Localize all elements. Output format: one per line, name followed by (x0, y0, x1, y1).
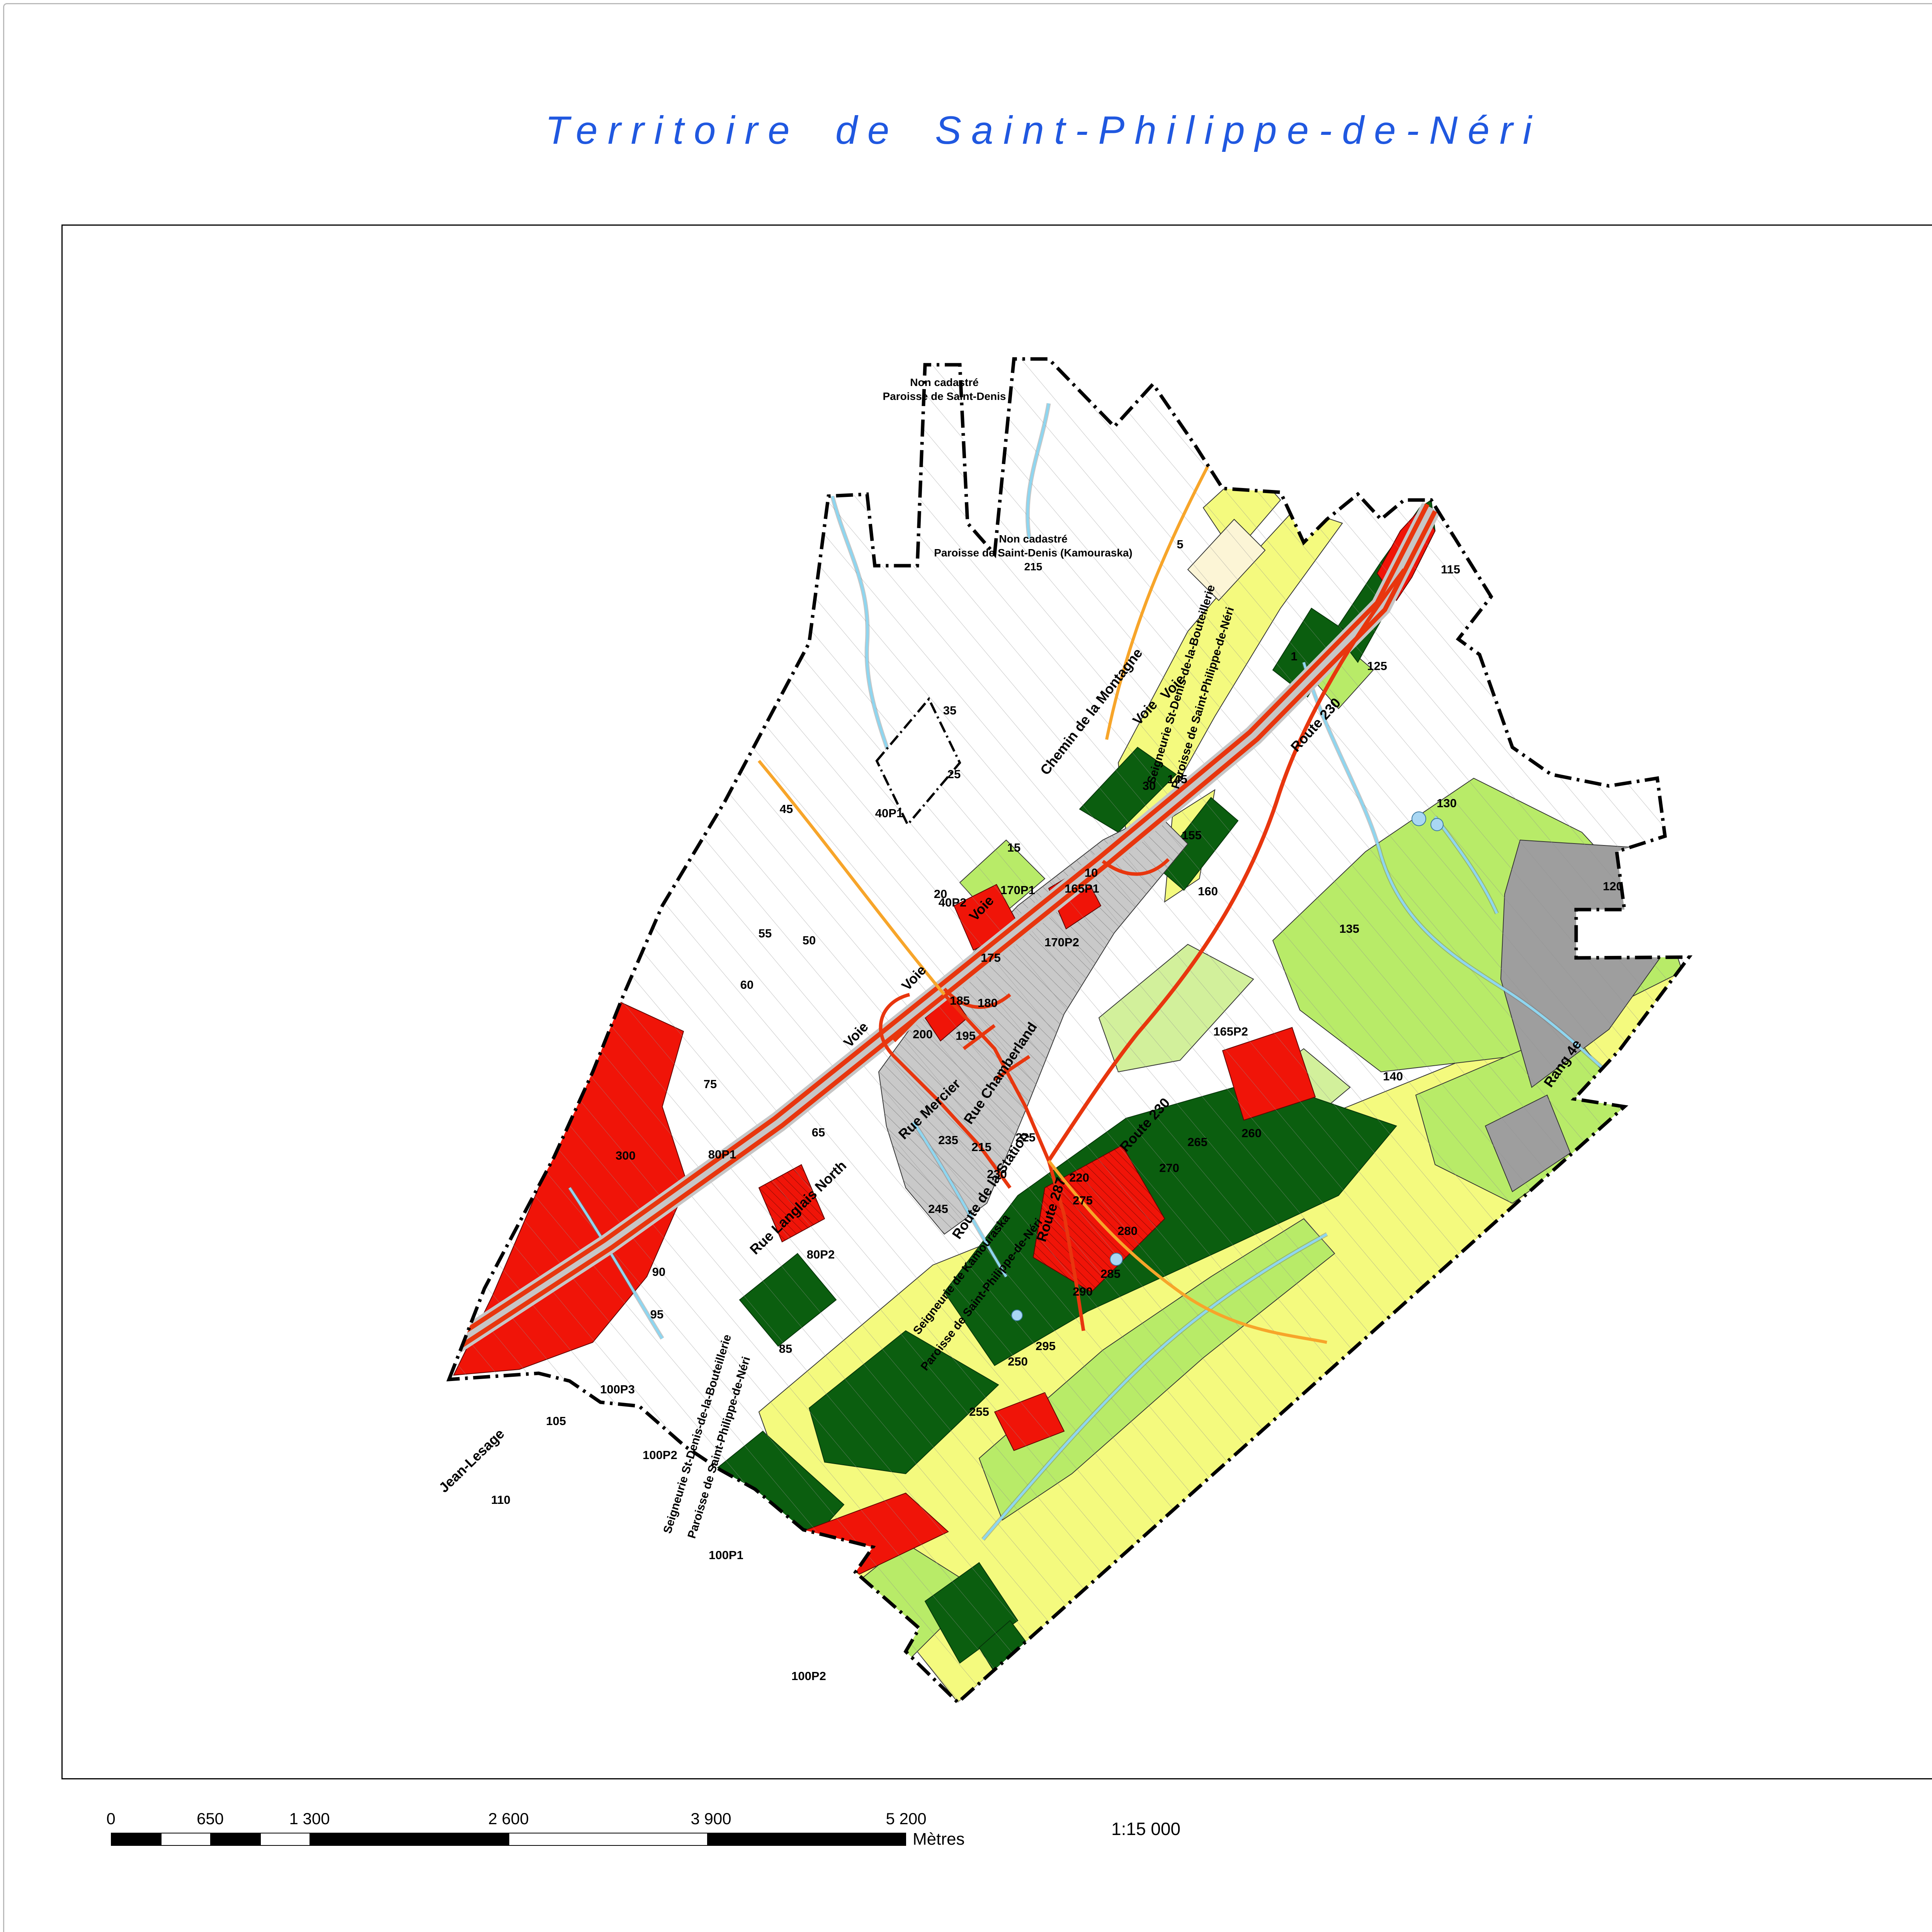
lot-label: 155 (1182, 828, 1202, 842)
scale-ratio: 1:15 000 (1111, 1818, 1180, 1839)
lot-label: 15 (1007, 841, 1020, 854)
lot-label: 120 (1603, 879, 1623, 893)
zones-layer (448, 342, 1721, 1702)
lot-label: 300 (616, 1149, 636, 1162)
lot-label: 245 (928, 1202, 948, 1216)
lot-label: 290 (1073, 1285, 1093, 1298)
scalebar-unit: Mètres (913, 1830, 964, 1849)
scalebar-ticks: 06501 3002 6003 9005 200 (111, 1810, 1116, 1830)
lot-label: 265 (1187, 1135, 1207, 1149)
lot-label: 60 (740, 978, 753, 992)
cadastre-lines (449, 359, 1689, 1702)
lot-label: 100P2 (643, 1448, 677, 1462)
lot-label: 280 (1117, 1224, 1138, 1238)
lot-label: 80P2 (807, 1248, 835, 1261)
scalebar-segment (509, 1833, 708, 1845)
lot-label: 160 (1198, 884, 1218, 898)
scalebar-segment (708, 1833, 905, 1845)
road-label: Jean-Lesage (436, 1426, 507, 1496)
lot-label: 130 (1437, 796, 1457, 810)
lot-label: 135 (1339, 922, 1359, 935)
lot-label: 125 (1367, 659, 1387, 673)
scalebar-tick: 1 300 (289, 1810, 330, 1828)
lot-label: 275 (1073, 1194, 1093, 1207)
lot-label: 40P1 (875, 806, 903, 820)
lot-label: 220 (1069, 1171, 1089, 1184)
lot-label: 85 (779, 1342, 792, 1355)
lot-label: 185 (950, 994, 970, 1007)
scalebar-tick: 0 (106, 1810, 115, 1828)
lot-label: 40P2 (939, 896, 966, 909)
lot-label: 10 (1085, 866, 1098, 879)
scalebar-segment (112, 1833, 162, 1845)
lot-label: 110 (491, 1493, 510, 1507)
lot-label: 195 (956, 1029, 976, 1043)
lot-label: 215 (971, 1140, 992, 1154)
scalebar-tick: 5 200 (886, 1810, 926, 1828)
page-title: Territoire de Saint-Philippe-de-Néri (545, 108, 1666, 153)
scalebar-segment (211, 1833, 261, 1845)
lot-label: 25 (947, 767, 961, 781)
lot-label: 170P1 (1000, 883, 1035, 897)
page: Territoire de Saint-Philippe-de-Néri (3, 3, 1932, 1932)
scalebar-segment (162, 1833, 211, 1845)
lot-label: 35 (943, 704, 956, 717)
lot-label: 200 (913, 1027, 933, 1041)
lot-label: 105 (546, 1414, 566, 1428)
lot-label: 55 (759, 927, 772, 940)
scalebar-bar (111, 1833, 906, 1846)
lot-label: 80P1 (708, 1148, 736, 1161)
scalebar-tick: 3 900 (690, 1810, 731, 1828)
lot-label: 50 (803, 934, 816, 947)
lot-label: 95 (650, 1308, 663, 1321)
lot-label: 115 (1441, 563, 1460, 576)
lot-label: 165P1 (1065, 882, 1099, 895)
lot-label: 75 (704, 1077, 717, 1091)
scalebar-tick: 2 600 (488, 1810, 529, 1828)
lot-label: 140 (1383, 1070, 1403, 1083)
territory-map: 5111512535254540P115201040P2305055607565… (63, 226, 1932, 1778)
scalebar-segment (261, 1833, 311, 1845)
lot-label: 5 (1177, 537, 1183, 551)
lot-label: 100P2 (791, 1669, 826, 1683)
scalebar-segment (310, 1833, 509, 1845)
lot-label: 255 (969, 1405, 989, 1418)
lot-label: 165P2 (1213, 1025, 1248, 1038)
lot-label: 100P1 (709, 1548, 743, 1562)
lot-label: 260 (1242, 1126, 1262, 1140)
lot-label: 90 (652, 1265, 665, 1279)
lot-label: 45 (780, 802, 793, 816)
scalebar: 06501 3002 6003 9005 200 Mètres (111, 1810, 1116, 1846)
lot-label: 170P2 (1044, 935, 1079, 949)
lot-label: 295 (1036, 1339, 1056, 1353)
lot-label: 180 (978, 996, 998, 1010)
lot-label: 250 (1008, 1355, 1028, 1368)
lot-label: 285 (1100, 1267, 1121, 1281)
lot-label: 1 (1291, 650, 1297, 663)
lot-label: 100P3 (600, 1383, 635, 1396)
scalebar-tick: 650 (197, 1810, 224, 1828)
map-frame: 5111512535254540P115201040P2305055607565… (61, 224, 1932, 1779)
lot-label: 235 (938, 1133, 958, 1147)
lot-label: 65 (812, 1126, 825, 1139)
lot-label: 175 (981, 951, 1001, 964)
lot-label: 270 (1159, 1161, 1179, 1175)
